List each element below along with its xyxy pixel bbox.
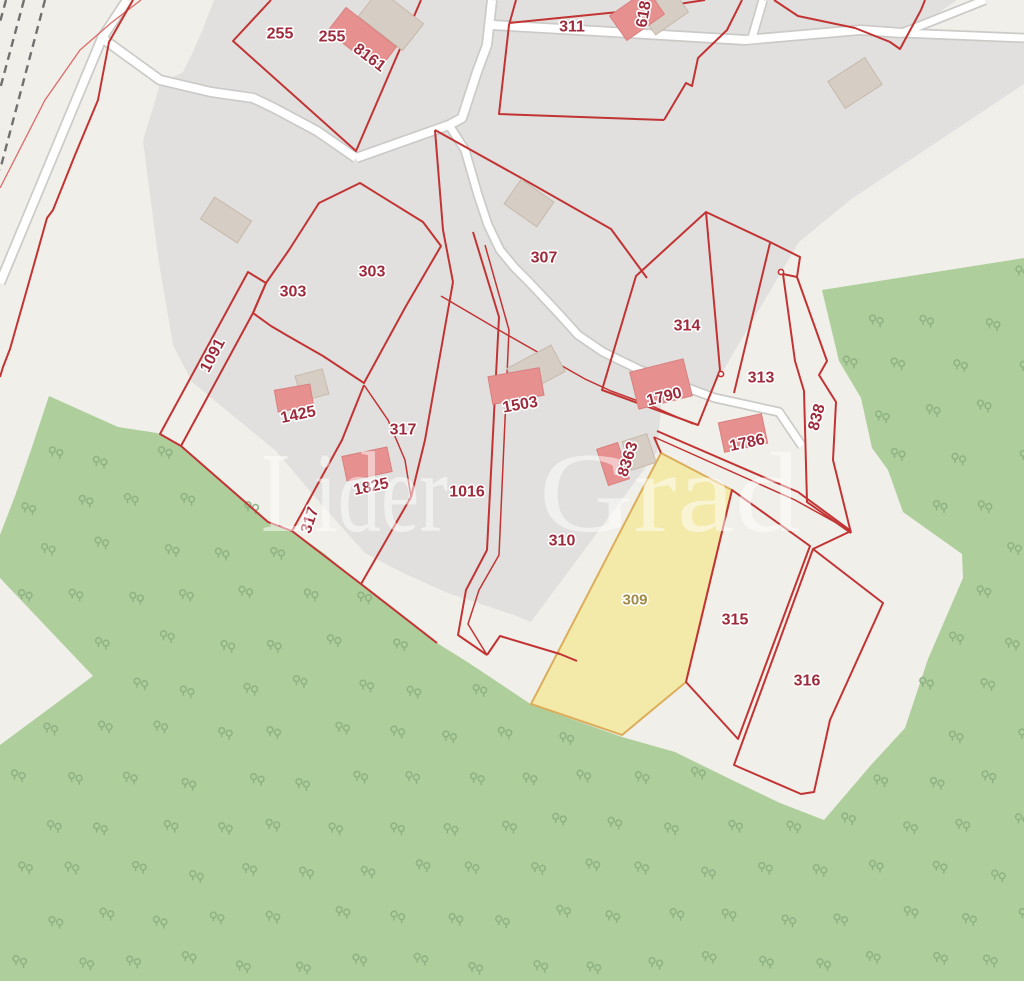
svg-text:Lider: Lider — [261, 429, 448, 556]
svg-text:313: 313 — [748, 370, 775, 387]
svg-text:303: 303 — [280, 284, 307, 301]
svg-text:303: 303 — [359, 264, 386, 281]
svg-text:255: 255 — [319, 29, 346, 46]
svg-text:314: 314 — [674, 318, 701, 335]
svg-text:1016: 1016 — [449, 484, 485, 501]
svg-text:315: 315 — [722, 612, 749, 629]
svg-text:Grad: Grad — [539, 429, 800, 556]
svg-text:307: 307 — [531, 250, 558, 267]
svg-text:309: 309 — [622, 591, 647, 608]
svg-text:311: 311 — [559, 19, 585, 36]
svg-text:316: 316 — [794, 673, 821, 690]
svg-text:255: 255 — [267, 26, 294, 43]
